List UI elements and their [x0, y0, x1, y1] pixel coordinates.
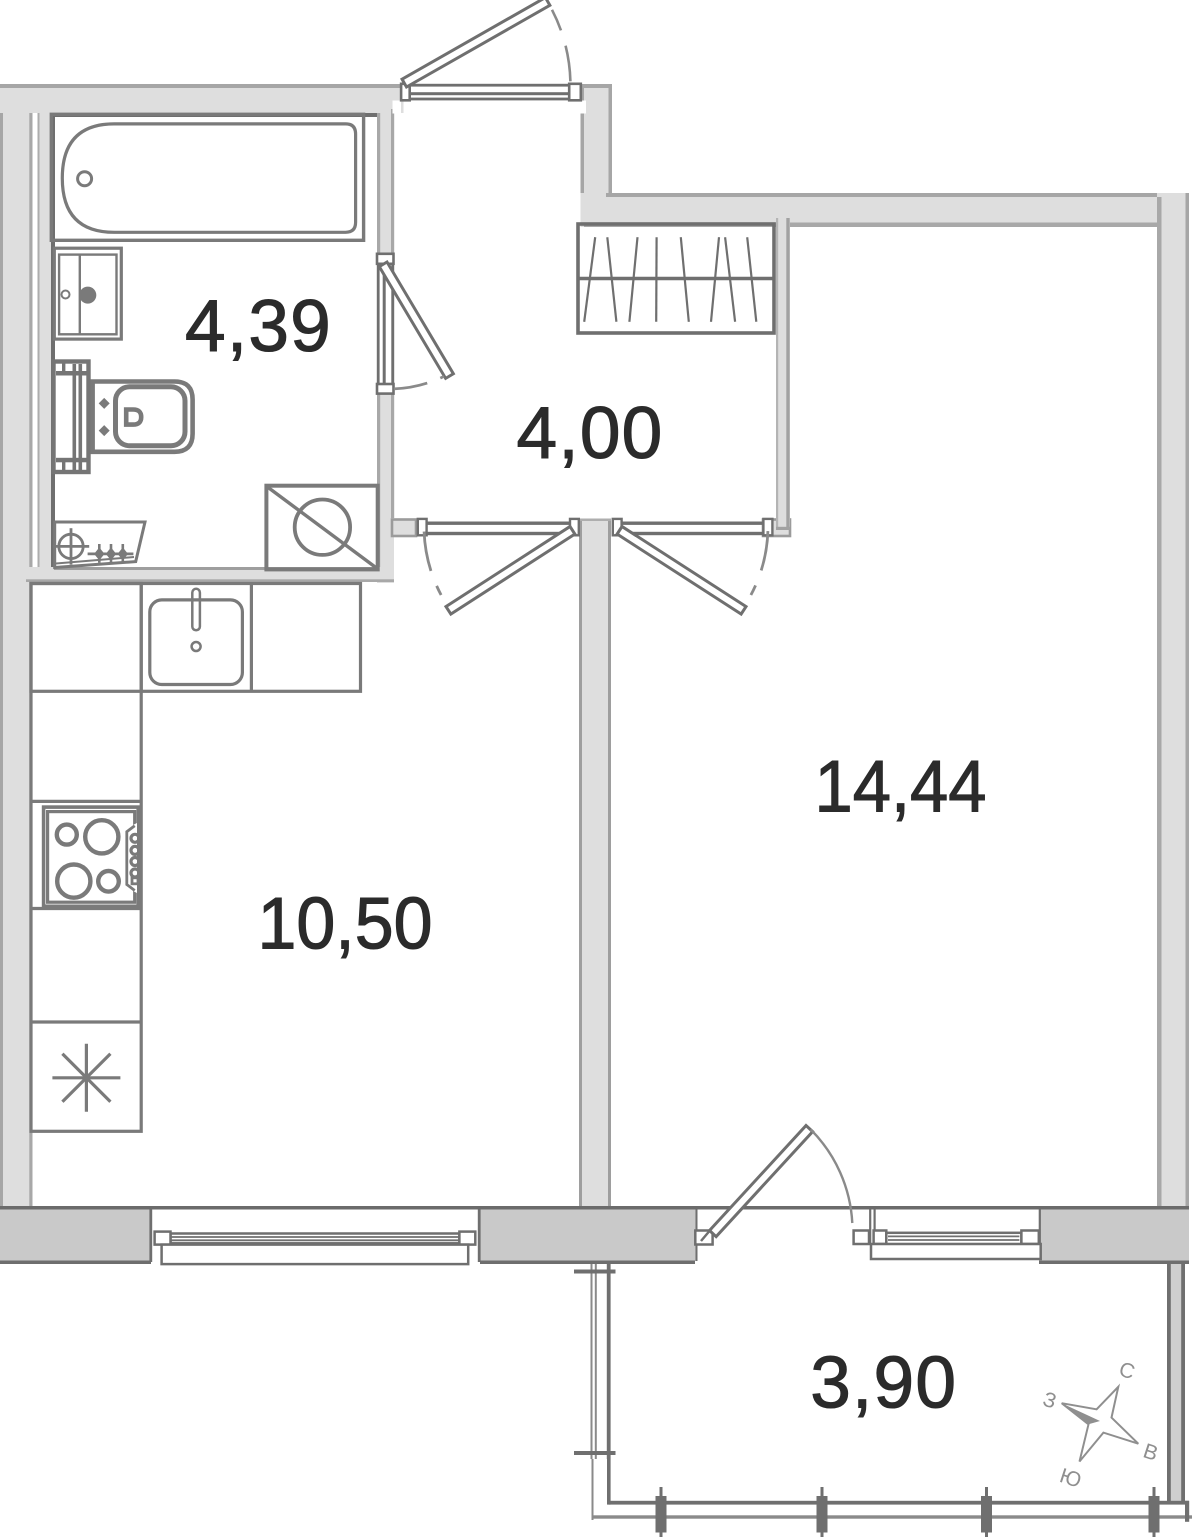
svg-text:10,50: 10,50 — [258, 883, 433, 964]
svg-text:4,00: 4,00 — [517, 393, 664, 474]
svg-text:14,44: 14,44 — [815, 747, 987, 828]
svg-text:3,90: 3,90 — [810, 1343, 957, 1424]
svg-text:4,39: 4,39 — [185, 286, 332, 367]
